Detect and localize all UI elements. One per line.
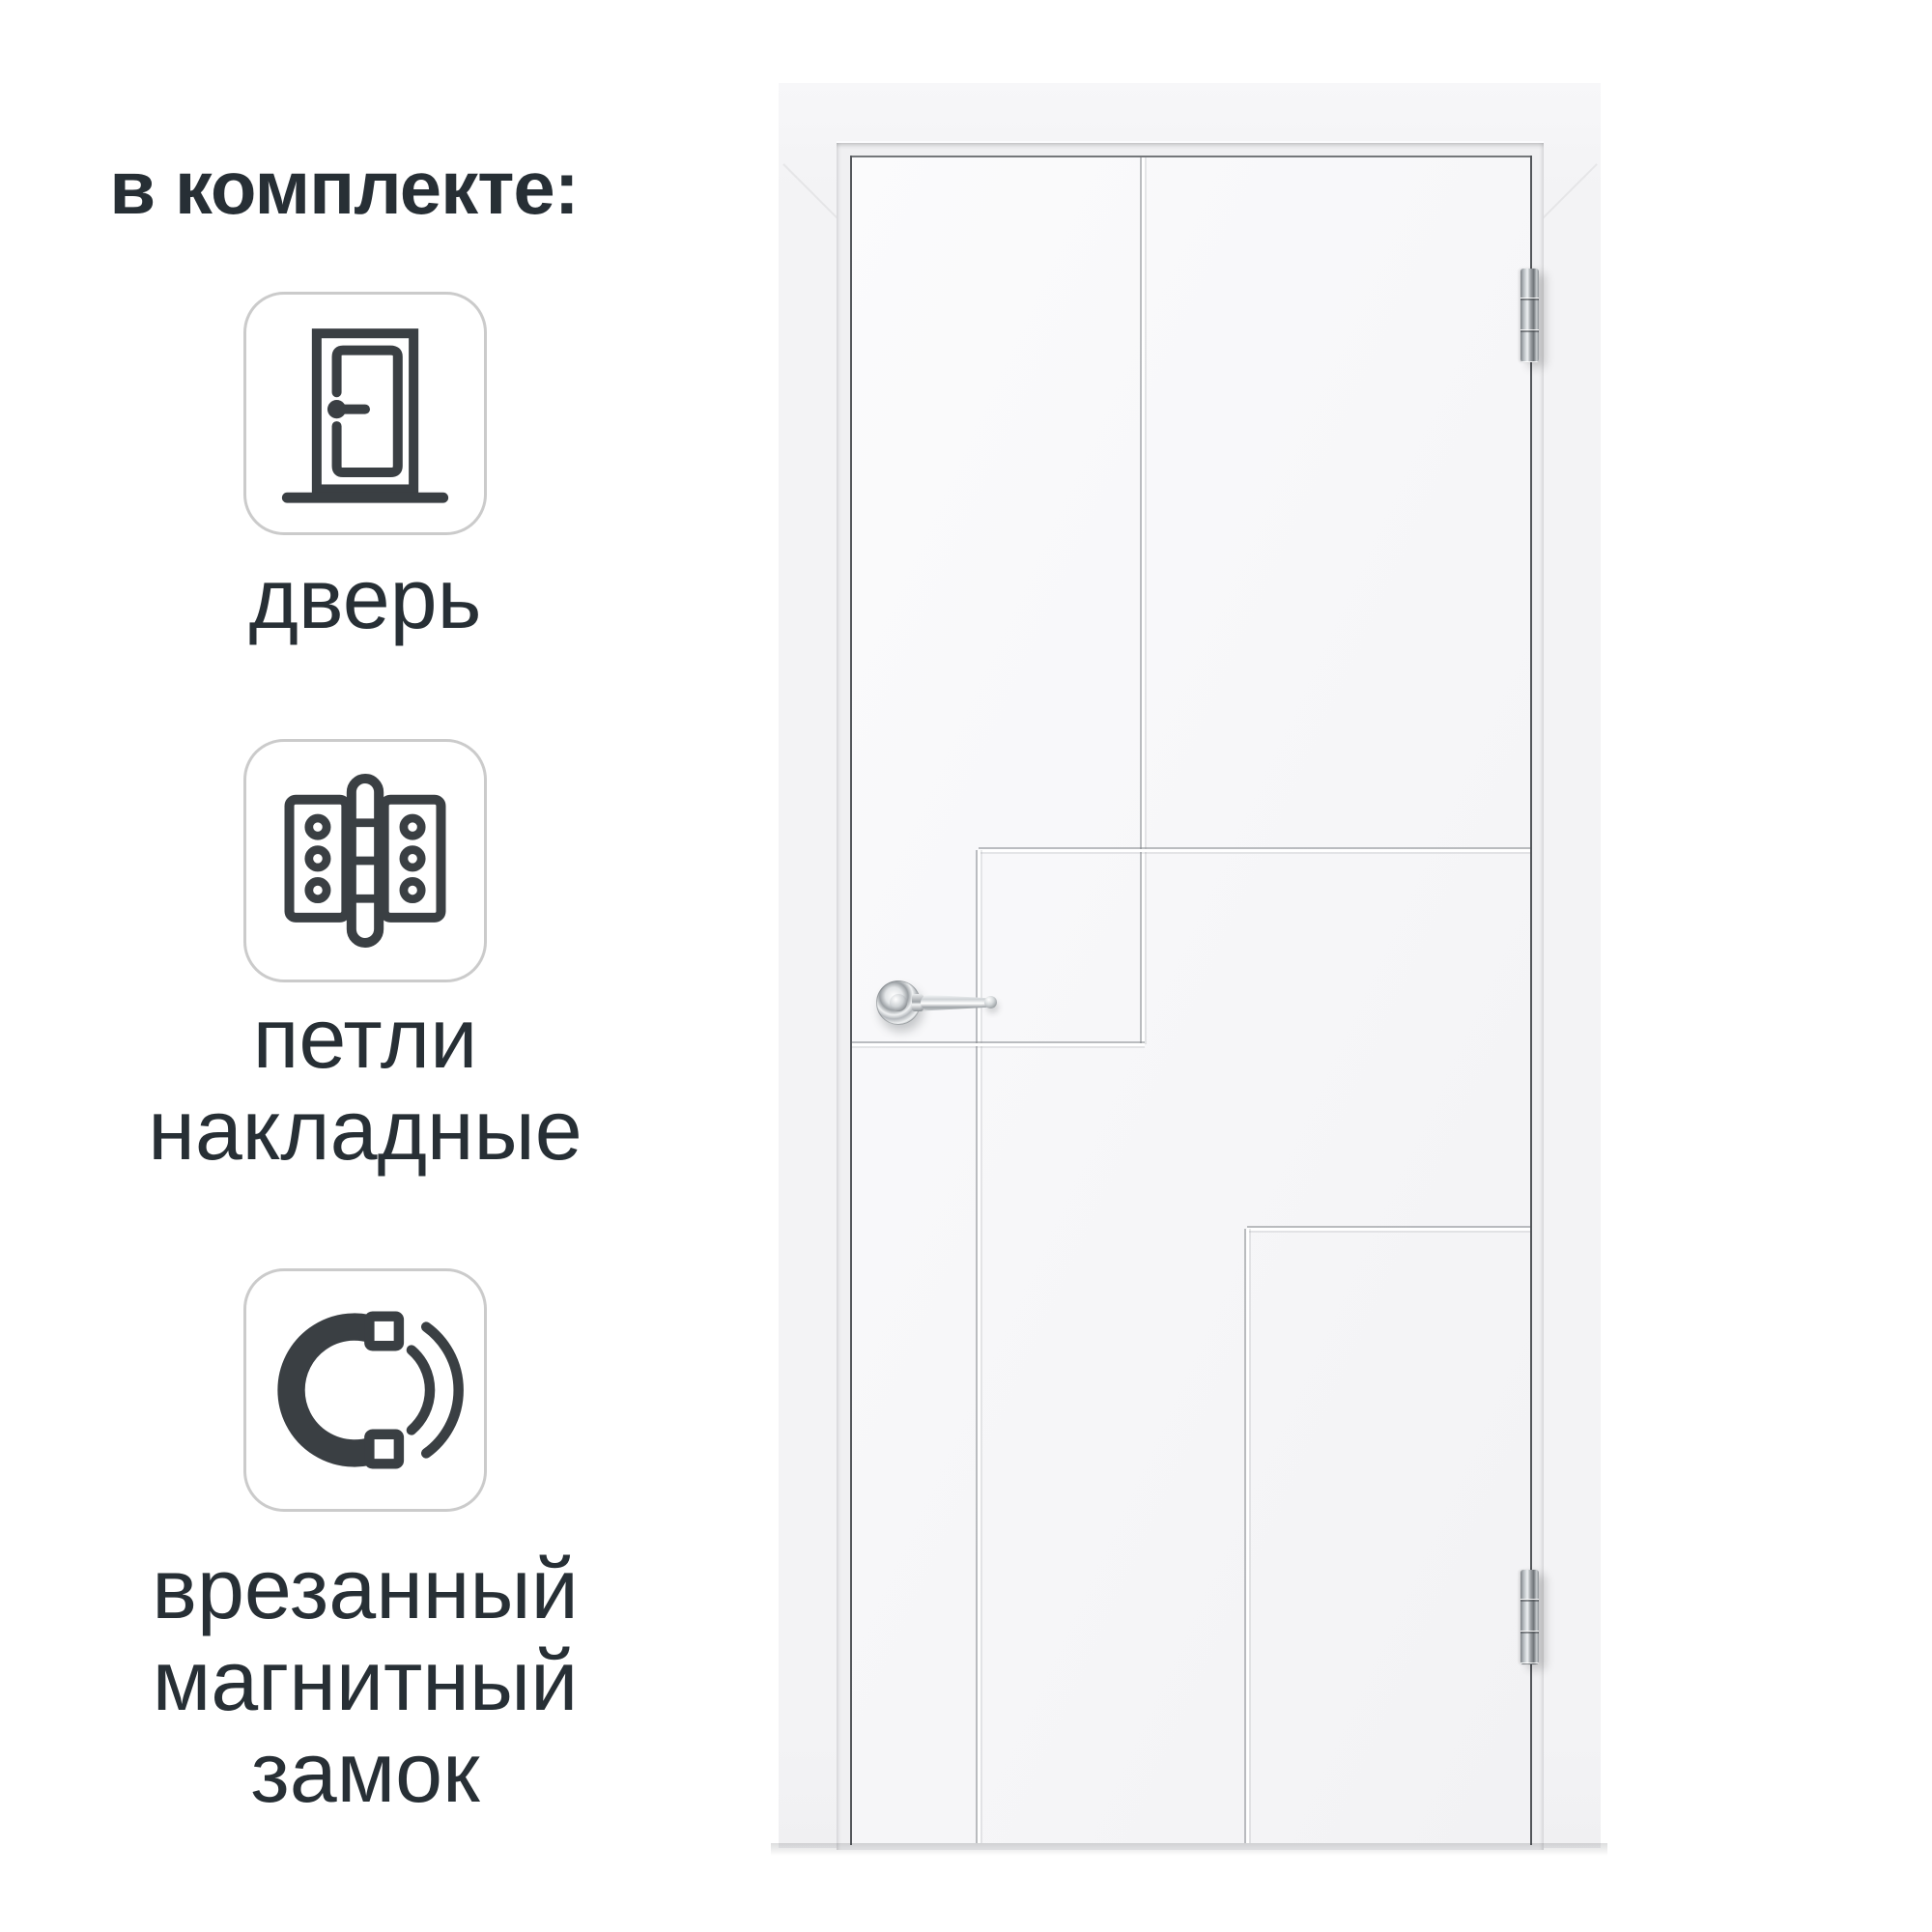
door-hinge-top	[1520, 269, 1539, 362]
feature-label-door: дверь	[37, 553, 694, 644]
door-icon	[246, 295, 484, 532]
hinge-icon	[246, 742, 484, 980]
feature-label-line: накладные	[37, 1084, 694, 1176]
feature-label-line: врезанный	[37, 1543, 694, 1634]
door-groove-vertical-top	[1140, 157, 1147, 1044]
frame-miter-joint	[1536, 163, 1598, 225]
floor-shadow	[771, 1843, 1607, 1856]
door-groove-horizontal-upper	[979, 847, 1530, 854]
feature-label-line: петли	[37, 992, 694, 1084]
feature-card-door	[243, 292, 487, 535]
feature-label-magnetic-lock: врезанный магнитный замок	[37, 1543, 694, 1818]
feature-label-hinges: петли накладные	[37, 992, 694, 1176]
included-title: в комплекте:	[25, 142, 663, 234]
feature-label-line: замок	[37, 1726, 694, 1818]
frame-miter-joint	[782, 163, 844, 225]
feature-card-hinges	[243, 739, 487, 982]
handle-hub	[890, 994, 907, 1011]
feature-label-line: магнитный	[37, 1634, 694, 1726]
handle-finial	[984, 996, 997, 1009]
door-gap-line-left	[850, 156, 852, 1845]
door-hinge-bottom	[1520, 1570, 1539, 1664]
door-groove-horizontal-middle	[852, 1041, 1145, 1048]
feature-label-line: дверь	[37, 553, 694, 644]
feature-card-magnetic-lock	[243, 1268, 487, 1512]
page: в комплекте: дверь	[0, 0, 1932, 1932]
door-gap-line-top	[850, 156, 1532, 157]
door-groove-horizontal-lower	[1247, 1226, 1530, 1233]
door-groove-vertical-bottom	[1244, 1229, 1251, 1843]
magnet-icon	[246, 1271, 484, 1509]
